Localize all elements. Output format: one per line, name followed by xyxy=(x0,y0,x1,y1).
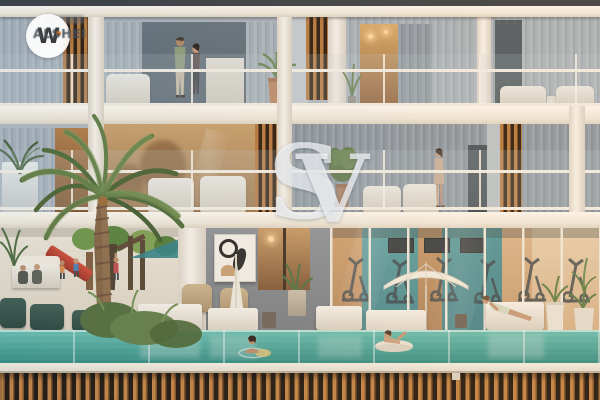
potted-plants xyxy=(540,256,600,332)
side-table xyxy=(262,312,276,328)
watermark-letter-v: V xyxy=(296,148,369,233)
building-render: W ALSHEI S V xyxy=(0,0,600,400)
podium-seam xyxy=(452,373,460,380)
lamp-glow xyxy=(368,34,373,39)
white-pier xyxy=(569,106,585,228)
underwater-reflection xyxy=(488,334,544,358)
center-watermark: S V xyxy=(258,138,378,258)
underwater-reflection xyxy=(318,336,362,358)
lamp-glow xyxy=(384,30,388,34)
brand-name: ALSHEI xyxy=(33,26,86,41)
palm-tree xyxy=(14,48,222,348)
artwork-halfcircle xyxy=(221,265,235,276)
floor-slab xyxy=(0,6,600,17)
sun-lounger xyxy=(316,306,362,330)
swimmer xyxy=(236,332,274,360)
swimmer-on-float xyxy=(370,326,416,356)
timber-slat-podium-wall xyxy=(0,373,600,400)
plant-pot xyxy=(288,290,306,316)
side-table xyxy=(455,314,467,328)
woman-on-lounger xyxy=(474,290,538,328)
